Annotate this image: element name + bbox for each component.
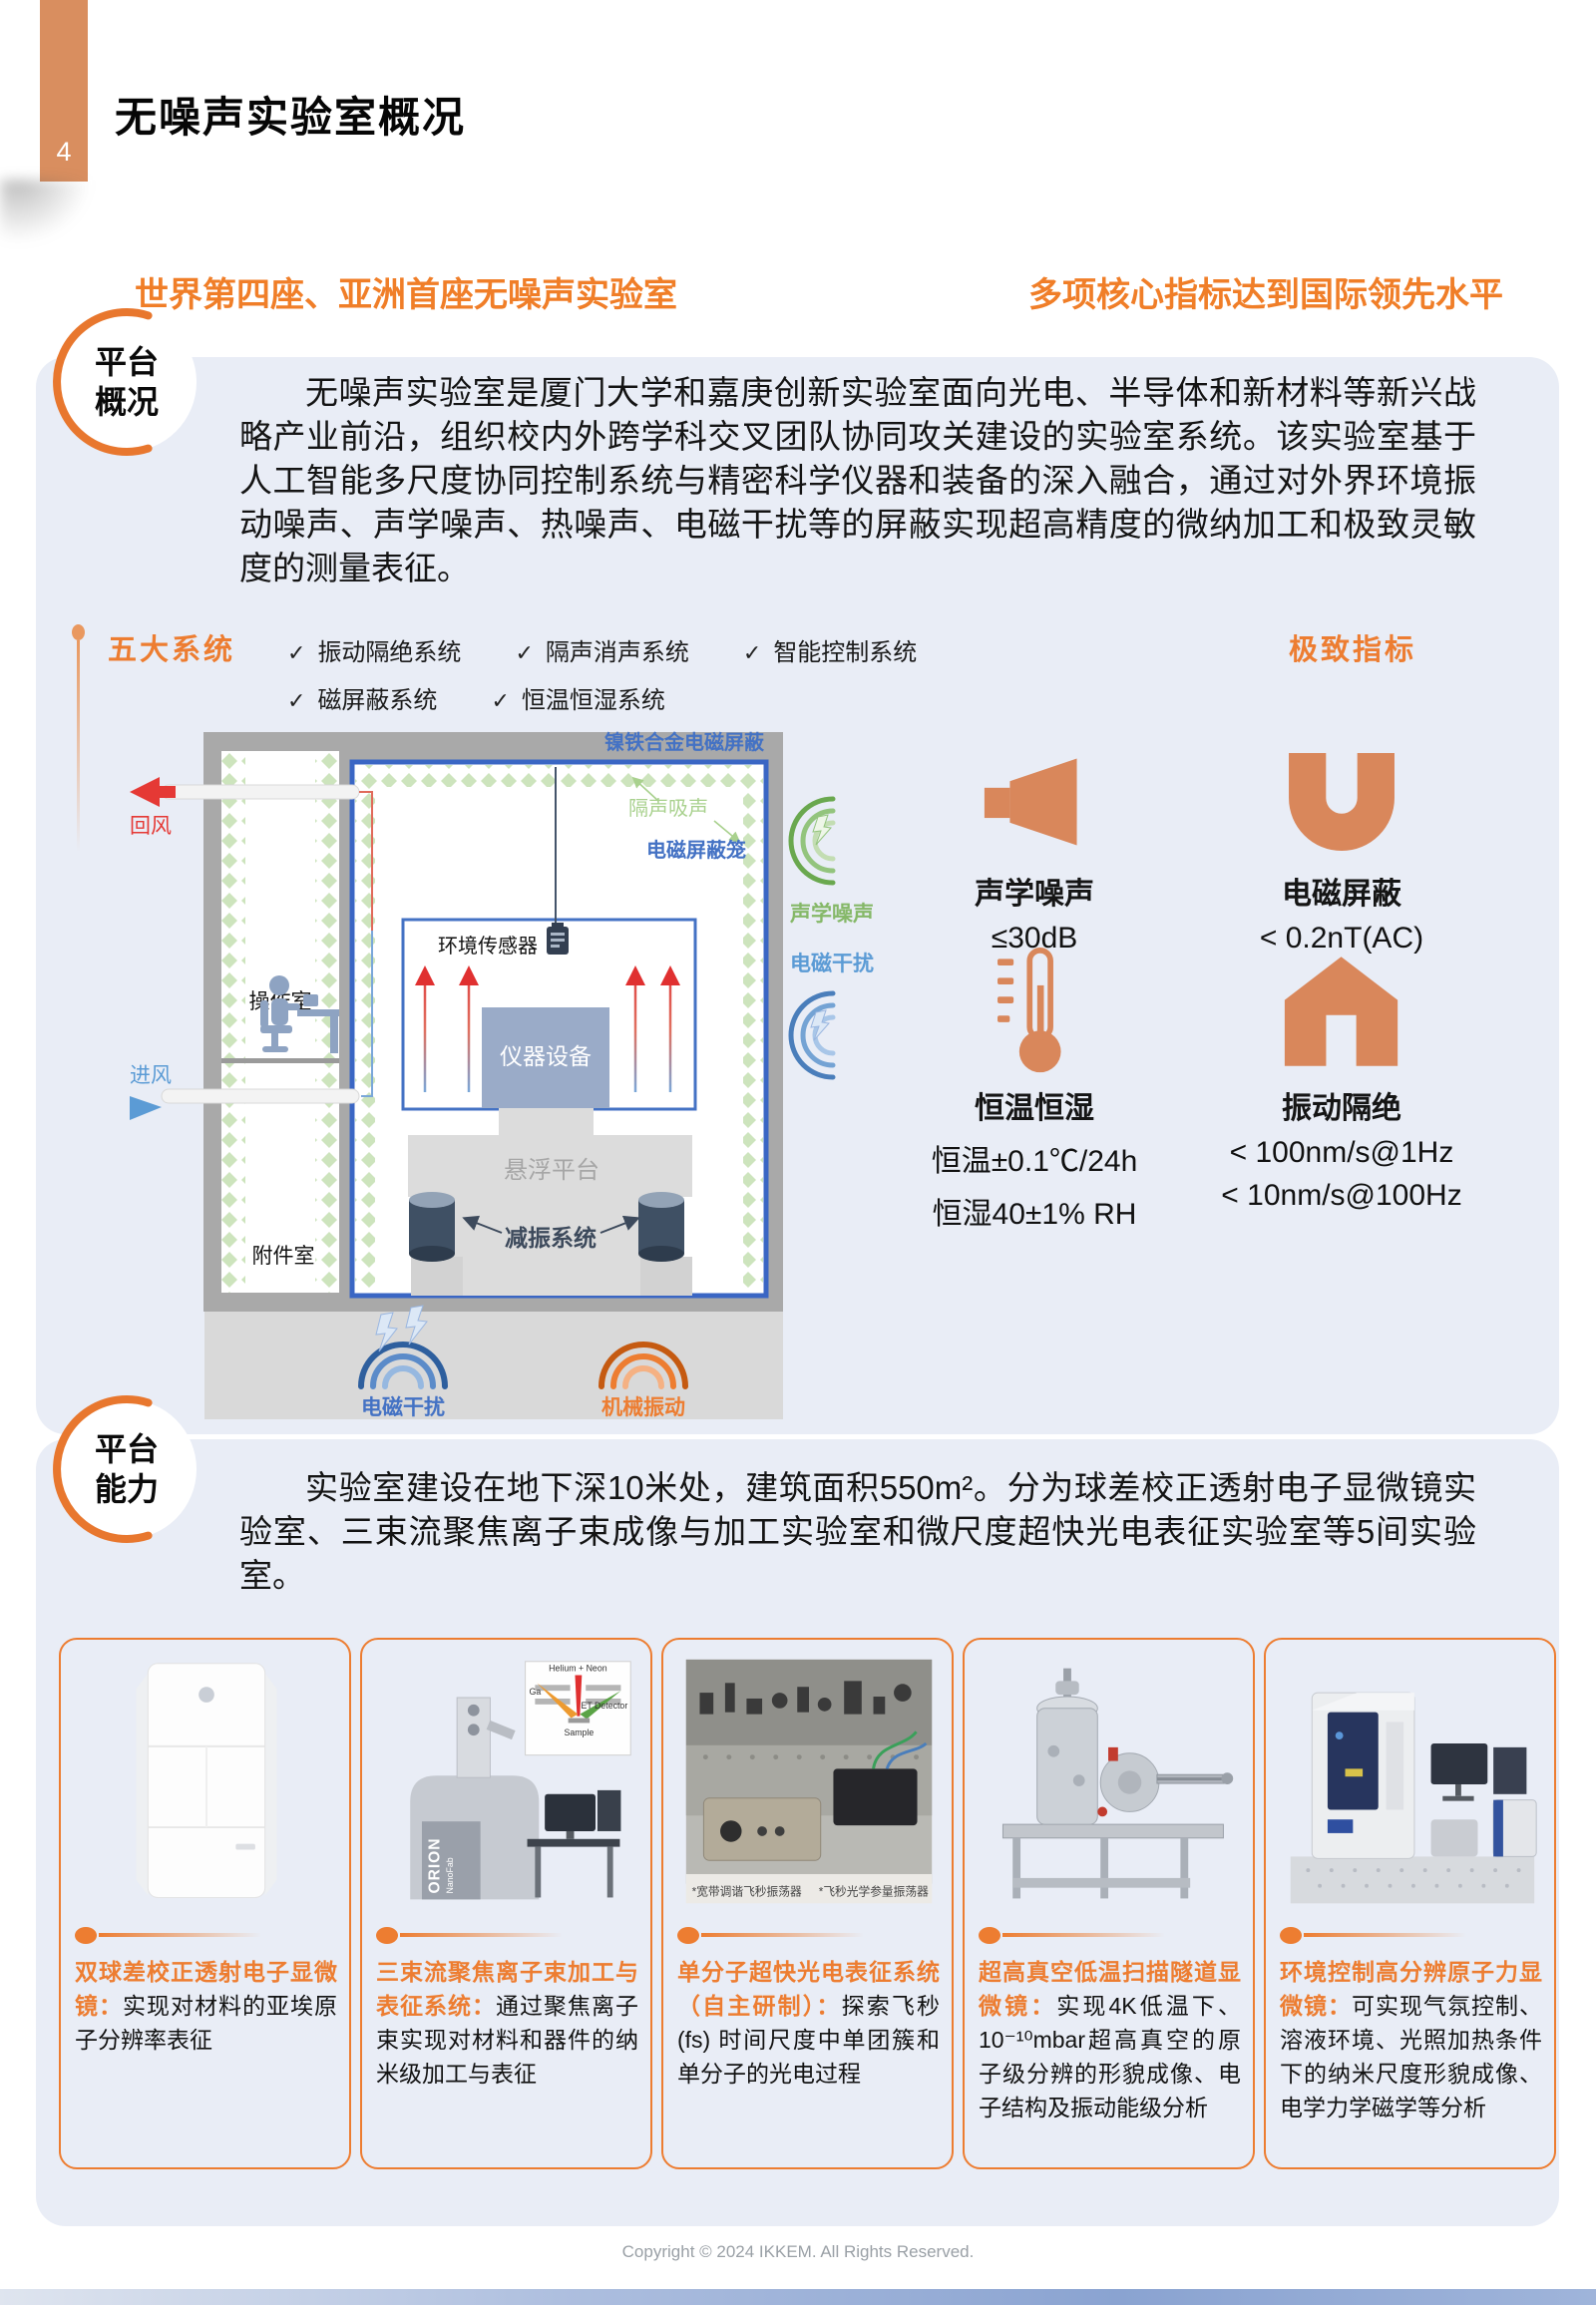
- system-item-label: 振动隔绝系统: [317, 639, 461, 666]
- supply-air-label: 进风: [130, 1064, 172, 1087]
- bottom-bar: [0, 2289, 1596, 2305]
- metric-emshield: 电磁屏蔽 < 0.2nT(AC): [1192, 743, 1491, 956]
- fib-illustration: ORION NanoFab Helium + Neon: [378, 1654, 637, 1917]
- acoustic-noise-label: 声学噪声: [789, 902, 874, 926]
- card-divider: [677, 1925, 940, 1945]
- headline: 世界第四座、亚洲首座无噪声实验室 多项核心指标达到国际领先水平: [135, 267, 1503, 316]
- metric-value: < 10nm/s@100Hz: [1192, 1179, 1491, 1213]
- system-item: ✓磁屏蔽系统: [287, 680, 437, 715]
- speaker-icon: [885, 743, 1184, 861]
- instrument-box: 仪器设备: [482, 1007, 609, 1108]
- check-icon: ✓: [287, 688, 305, 713]
- metric-value: 恒温±0.1℃/24h: [885, 1136, 1184, 1180]
- marker-dot-icon: [72, 624, 85, 640]
- badge-line2: 能力: [95, 1469, 159, 1509]
- slide-page: 4 无噪声实验室概况 世界第四座、亚洲首座无噪声实验室 多项核心指标达到国际领先…: [0, 0, 1596, 2305]
- check-icon: ✓: [515, 640, 533, 665]
- return-air-arrow-icon: [130, 777, 176, 807]
- accessory-room-label: 附件室: [252, 1245, 315, 1268]
- page-title: 无噪声实验室概况: [115, 84, 466, 145]
- marker-line: [77, 640, 80, 852]
- equipment-card-fib: ORION NanoFab Helium + Neon: [360, 1638, 652, 2169]
- tab-shadow: [0, 180, 100, 251]
- badge-line1: 平台: [95, 1429, 159, 1469]
- system-item-label: 恒温恒湿系统: [522, 687, 665, 714]
- afm-illustration: [1282, 1654, 1541, 1917]
- headline-left: 世界第四座、亚洲首座无噪声实验室: [135, 267, 677, 316]
- optics-caption-1: *宽带调谐飞秒振荡器: [691, 1884, 801, 1898]
- metric-acoustic: 声学噪声 ≤30dB: [885, 743, 1184, 956]
- systems-title: 五大系统: [108, 626, 235, 668]
- optics-photo: *宽带调谐飞秒振荡器 *飞秒光学参量振荡器: [677, 1652, 940, 1919]
- system-item-label: 隔声消声系统: [546, 639, 689, 666]
- systems-row-1: ✓振动隔绝系统 ✓隔声消声系统 ✓智能控制系统: [287, 632, 917, 667]
- return-air-label: 回风: [130, 815, 172, 838]
- vibration-bottom-label: 机械振动: [601, 1395, 685, 1419]
- supply-air-arrow-icon: [130, 1096, 162, 1120]
- overview-paragraph: 无噪声实验室是厦门大学和嘉庚创新实验室面向光电、半导体和新材料等新兴战略产业前沿…: [239, 371, 1476, 590]
- house-icon: [1192, 948, 1491, 1075]
- inset-ga-label: Ga: [529, 1687, 541, 1697]
- system-item: ✓隔声消声系统: [515, 632, 688, 667]
- sensor-icon: [547, 923, 569, 955]
- system-item-label: 智能控制系统: [773, 639, 917, 666]
- card-text: 环境控制高分辨原子力显微镜：可实现气氛控制、溶液环境、光照加热条件下的纳米尺度形…: [1280, 1955, 1542, 2124]
- lab-diagram: 镍铁合金电磁屏蔽 隔声吸声 电磁屏蔽笼 环境传感器 仪器设备: [120, 731, 898, 1419]
- instrument-label: 仪器设备: [500, 1043, 592, 1069]
- system-item: ✓智能控制系统: [743, 632, 917, 667]
- card-divider: [979, 1925, 1241, 1945]
- equipment-card-ultrafast: *宽带调谐飞秒振荡器 *飞秒光学参量振荡器 单分子超快光电表征系统（自主研制）：…: [661, 1638, 954, 2169]
- inset-sample-label: Sample: [564, 1728, 594, 1737]
- stm-illustration: [981, 1654, 1240, 1917]
- footer-copyright: Copyright © 2024 IKKEM. All Rights Reser…: [0, 2242, 1596, 2262]
- card-text: 双球差校正透射电子显微镜：实现对材料的亚埃原子分辨率表征: [75, 1955, 337, 2057]
- sensor-label: 环境传感器: [438, 935, 538, 958]
- divider-line: [1002, 1933, 1165, 1937]
- equipment-card-stm: 超高真空低温扫描隧道显微镜：实现4K低温下、10⁻¹⁰mbar超高真空的原子级分…: [963, 1638, 1255, 2169]
- stm-photo: [979, 1652, 1241, 1919]
- check-icon: ✓: [491, 688, 509, 713]
- capability-paragraph: 实验室建设在地下深10米处，建筑面积550m²。分为球差校正透射电子显微镜实验室…: [239, 1466, 1476, 1598]
- acoustic-noise-waves-icon: [791, 799, 833, 883]
- card-text: 超高真空低温扫描隧道显微镜：实现4K低温下、10⁻¹⁰mbar超高真空的原子级分…: [979, 1955, 1241, 2124]
- metric-value: < 100nm/s@1Hz: [1192, 1136, 1491, 1170]
- divider-dot-icon: [1280, 1927, 1302, 1944]
- system-item-label: 磁屏蔽系统: [317, 687, 437, 714]
- cage-label: 电磁屏蔽笼: [646, 838, 746, 862]
- metrics-title: 极致指标: [1289, 626, 1416, 668]
- emi-side-waves-icon: [791, 993, 833, 1077]
- inset-detector-label: ET Detector: [581, 1701, 627, 1711]
- metric-value: 恒湿40±1% RH: [885, 1189, 1184, 1233]
- check-icon: ✓: [743, 640, 761, 665]
- optics-caption-2: *飞秒光学参量振荡器: [818, 1884, 928, 1898]
- systems-row-2: ✓磁屏蔽系统 ✓恒温恒湿系统: [287, 680, 665, 715]
- card-divider: [376, 1925, 638, 1945]
- emi-bottom-label: 电磁干扰: [361, 1395, 445, 1419]
- afm-photo: [1280, 1652, 1542, 1919]
- divider-line: [400, 1933, 563, 1937]
- divider-dot-icon: [75, 1927, 97, 1944]
- card-text: 单分子超快光电表征系统（自主研制）：探索飞秒 (fs) 时间尺度中单团簇和单分子…: [677, 1955, 940, 2091]
- metric-label: 振动隔绝: [1192, 1083, 1491, 1127]
- card-divider: [75, 1925, 337, 1945]
- platform-overview-badge: 平台 概况: [52, 307, 201, 457]
- card-text: 三束流聚焦离子束加工与表征系统：通过聚焦离子束实现对材料和器件的纳米级加工与表征: [376, 1955, 638, 2091]
- tem-illustration: [77, 1654, 336, 1917]
- emi-side-label: 电磁干扰: [790, 952, 874, 975]
- equipment-cards: 双球差校正透射电子显微镜：实现对材料的亚埃原子分辨率表征: [59, 1638, 1556, 2169]
- divider-dot-icon: [979, 1927, 1000, 1944]
- divider-dot-icon: [677, 1927, 699, 1944]
- absorb-label: 隔声吸声: [628, 797, 708, 820]
- check-icon: ✓: [287, 640, 305, 665]
- machine-model-label: NanoFab: [445, 1857, 455, 1893]
- metric-label: 电磁屏蔽: [1192, 869, 1491, 913]
- platform-capability-badge: 平台 能力: [52, 1394, 201, 1544]
- shield-label: 镍铁合金电磁屏蔽: [604, 731, 765, 754]
- divider-line: [99, 1933, 261, 1937]
- divider-line: [701, 1933, 864, 1937]
- system-item: ✓恒温恒湿系统: [491, 680, 664, 715]
- magnet-icon: [1192, 743, 1491, 861]
- divider-dot-icon: [376, 1927, 398, 1944]
- equipment-card-afm: 环境控制高分辨原子力显微镜：可实现气氛控制、溶液环境、光照加热条件下的纳米尺度形…: [1264, 1638, 1556, 2169]
- page-number: 4: [40, 137, 88, 168]
- platform-label: 悬浮平台: [504, 1157, 599, 1184]
- metric-climate: 恒温恒湿 恒温±0.1℃/24h 恒湿40±1% RH: [885, 948, 1184, 1233]
- system-item: ✓振动隔绝系统: [287, 632, 461, 667]
- metric-label: 恒温恒湿: [885, 1083, 1184, 1127]
- headline-right: 多项核心指标达到国际领先水平: [1028, 267, 1503, 316]
- optics-illustration: *宽带调谐飞秒振荡器 *飞秒光学参量振荡器: [679, 1654, 939, 1917]
- equipment-card-tem: 双球差校正透射电子显微镜：实现对材料的亚埃原子分辨率表征: [59, 1638, 351, 2169]
- tem-photo: [75, 1652, 337, 1919]
- badge-line2: 概况: [95, 382, 159, 422]
- damper-label: 减振系统: [505, 1225, 597, 1251]
- divider-line: [1304, 1933, 1466, 1937]
- fib-photo: ORION NanoFab Helium + Neon: [376, 1652, 638, 1919]
- badge-line1: 平台: [95, 342, 159, 382]
- page-number-tab: 4: [40, 0, 88, 182]
- thermometer-icon: [885, 948, 1184, 1075]
- inset-beam-label: Helium + Neon: [549, 1664, 607, 1674]
- metric-label: 声学噪声: [885, 869, 1184, 913]
- card-divider: [1280, 1925, 1542, 1945]
- metric-vibration: 振动隔绝 < 100nm/s@1Hz < 10nm/s@100Hz: [1192, 948, 1491, 1213]
- machine-brand-label: ORION: [426, 1837, 443, 1893]
- beam-inset-diagram: Helium + Neon Ga ET Detector Sample: [525, 1662, 630, 1755]
